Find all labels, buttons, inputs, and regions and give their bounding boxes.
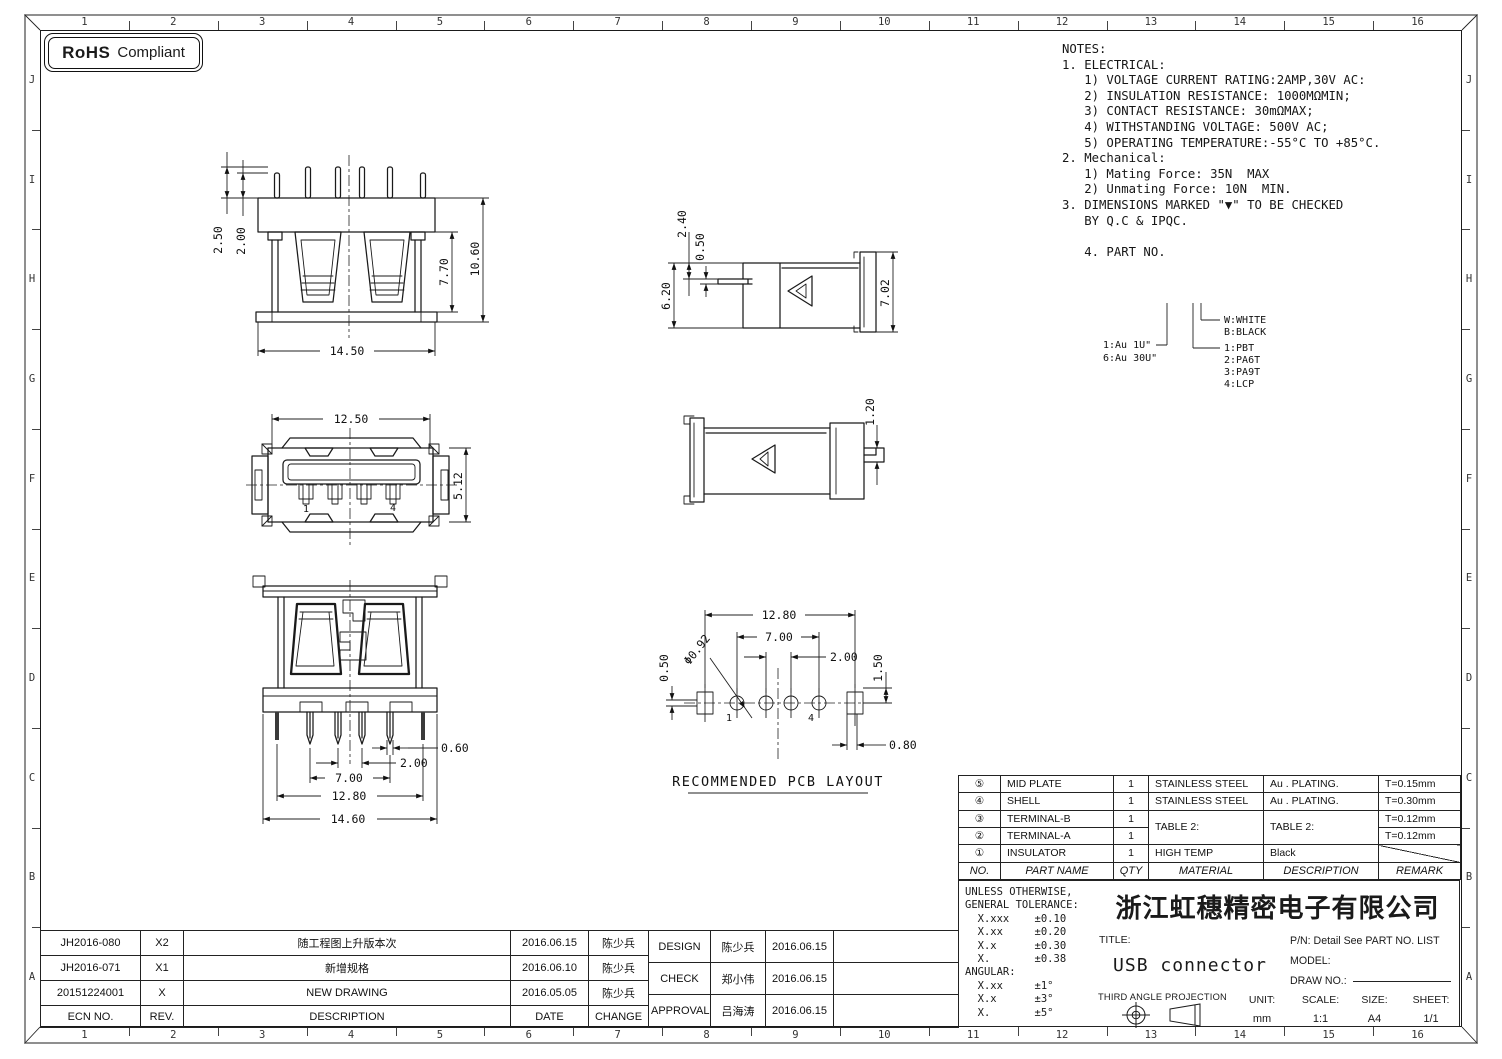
dim-label: 12.80 — [332, 789, 367, 803]
draw-no-row: DRAW NO.: — [1286, 971, 1461, 991]
side-view-a-drawing: 6.20 2.40 0.50 7.02 — [659, 210, 898, 332]
pin4-label: 4 — [390, 503, 396, 514]
dim-label: 2.00 — [234, 227, 248, 255]
title-label: TITLE: — [1099, 934, 1131, 946]
tolerance-block: UNLESS OTHERWISE, GENERAL TOLERANCE: X.x… — [959, 881, 1094, 1028]
dim-label: 7.00 — [335, 771, 363, 785]
part-row: ⑤ MID PLATE 1 STAINLESS STEEL Au . PLATI… — [959, 776, 1461, 793]
size-label: SIZE: — [1348, 991, 1401, 1009]
part-row: ④ SHELL 1 STAINLESS STEEL Au . PLATING. … — [959, 793, 1461, 810]
dim-label: Φ0.92 — [681, 632, 713, 668]
title-cell: TITLE: USB connector — [1094, 931, 1286, 991]
signoff-row: APPROVAL 吕海涛 2016.06.15 — [649, 995, 959, 1028]
revision-table: JH2016-080 X2 随工程图上升版本次 2016.06.15 陈少兵 J… — [40, 930, 649, 1028]
dim-label: 6.20 — [659, 282, 673, 310]
projection-cell: THIRD ANGLE PROJECTION — [1094, 991, 1231, 1028]
signoff-row: CHECK 郑小伟 2016.06.15 — [649, 963, 959, 995]
draw-no-label: DRAW NO.: — [1290, 975, 1347, 987]
projection-label: THIRD ANGLE PROJECTION — [1094, 992, 1231, 1002]
dim-label: 2.00 — [400, 756, 428, 770]
dim-label: 7.00 — [765, 630, 793, 644]
part-number-row: P/N: Detail See PART NO. LIST — [1286, 931, 1461, 951]
legend-color-b: B:BLACK — [1224, 327, 1266, 338]
front-view-drawing: 1 4 12.50 5.12 — [246, 412, 471, 545]
pcb-layout-drawing: 1 4 Φ0.92 12.80 7.00 2.00 0.50 1.50 — [657, 608, 917, 793]
side-view-b-drawing: 1.20 — [684, 398, 884, 504]
scale-value: 1:1 — [1293, 1009, 1348, 1028]
legend-color-w: W:WHITE — [1224, 315, 1266, 326]
revision-row: 20151224001 X NEW DRAWING 2016.05.05 陈少兵 — [41, 981, 649, 1006]
size-value: A4 — [1348, 1009, 1401, 1028]
dim-label: 14.60 — [331, 812, 366, 826]
unit-value: mm — [1231, 1009, 1293, 1028]
dim-label: 0.60 — [441, 741, 469, 755]
dim-label: 7.70 — [437, 258, 451, 286]
legend-material-2: 2:PA6T — [1224, 355, 1260, 366]
pin4-label: 4 — [808, 713, 814, 724]
part-row: ③ TERMINAL-B 1 TABLE 2: TABLE 2: T=0.12m… — [959, 810, 1461, 827]
model-row: MODEL: — [1286, 951, 1461, 971]
dim-label: 14.50 — [330, 344, 365, 358]
legend-plating-1: 1:Au 1U" — [1103, 340, 1151, 351]
dim-label: 12.80 — [762, 608, 797, 622]
legend-material-1: 1:PBT — [1224, 343, 1254, 354]
dim-label: 2.50 — [211, 226, 225, 254]
pin1-label: 1 — [726, 713, 732, 724]
pcb-layout-caption: RECOMMENDED PCB LAYOUT — [672, 774, 884, 790]
dim-label: 12.50 — [334, 412, 369, 426]
dim-label: 0.50 — [693, 233, 707, 261]
unit-label: UNIT: — [1231, 991, 1293, 1009]
parts-list-table: ⑤ MID PLATE 1 STAINLESS STEEL Au . PLATI… — [958, 775, 1461, 880]
drawing-sheet: 1122334455667788991010111112121313141415… — [0, 0, 1502, 1059]
revision-row: JH2016-080 X2 随工程图上升版本次 2016.06.15 陈少兵 — [41, 931, 649, 956]
dim-label: 0.50 — [657, 654, 671, 682]
legend-material-3: 3:PA9T — [1224, 367, 1260, 378]
scale-label: SCALE: — [1293, 991, 1348, 1009]
revision-header-row: ECN NO. REV. DESCRIPTION DATE CHANGE — [41, 1006, 649, 1028]
dim-label: 1.20 — [863, 398, 877, 426]
dim-label: 2.40 — [675, 210, 689, 238]
dim-label: 5.12 — [451, 472, 465, 500]
signoff-row: DESIGN 陈少兵 2016.06.15 — [649, 931, 959, 963]
part-number-legend: 1:Au 1U" 6:Au 30U" W:WHITE B:BLACK 1:PBT… — [1103, 303, 1266, 390]
pin1-label: 1 — [303, 504, 309, 515]
signoff-table: DESIGN 陈少兵 2016.06.15 CHECK 郑小伟 2016.06.… — [648, 930, 959, 1028]
dim-label: 10.60 — [468, 242, 482, 277]
draw-no-blank-line — [1353, 981, 1451, 982]
revision-row: JH2016-071 X1 新增规格 2016.06.10 陈少兵 — [41, 956, 649, 981]
bottom-rear-view-drawing: 0.60 2.00 7.00 12.80 14.60 — [253, 576, 469, 826]
sheet-value: 1/1 — [1401, 1009, 1461, 1028]
sheet-label: SHEET: — [1401, 991, 1461, 1009]
dim-label: 0.80 — [889, 738, 917, 752]
legend-material-4: 4:LCP — [1224, 379, 1254, 390]
drawing-title: USB connector — [1094, 955, 1286, 976]
rear-view-drawing: 2.50 2.00 7.70 10.60 14.50 — [211, 152, 489, 358]
parts-header-row: NO. PART NAME QTY MATERIAL DESCRIPTION R… — [959, 862, 1461, 879]
dim-label: 1.50 — [871, 654, 885, 682]
legend-plating-2: 6:Au 30U" — [1103, 353, 1157, 364]
dim-label: 2.00 — [830, 650, 858, 664]
part-row: ① INSULATOR 1 HIGH TEMP Black — [959, 845, 1461, 862]
dim-label: 7.02 — [878, 279, 892, 307]
third-angle-projection-icon — [1098, 1002, 1228, 1028]
company-name: 浙江虹穗精密电子有限公司 — [1094, 881, 1461, 931]
title-block: UNLESS OTHERWISE, GENERAL TOLERANCE: X.x… — [958, 880, 1460, 1027]
